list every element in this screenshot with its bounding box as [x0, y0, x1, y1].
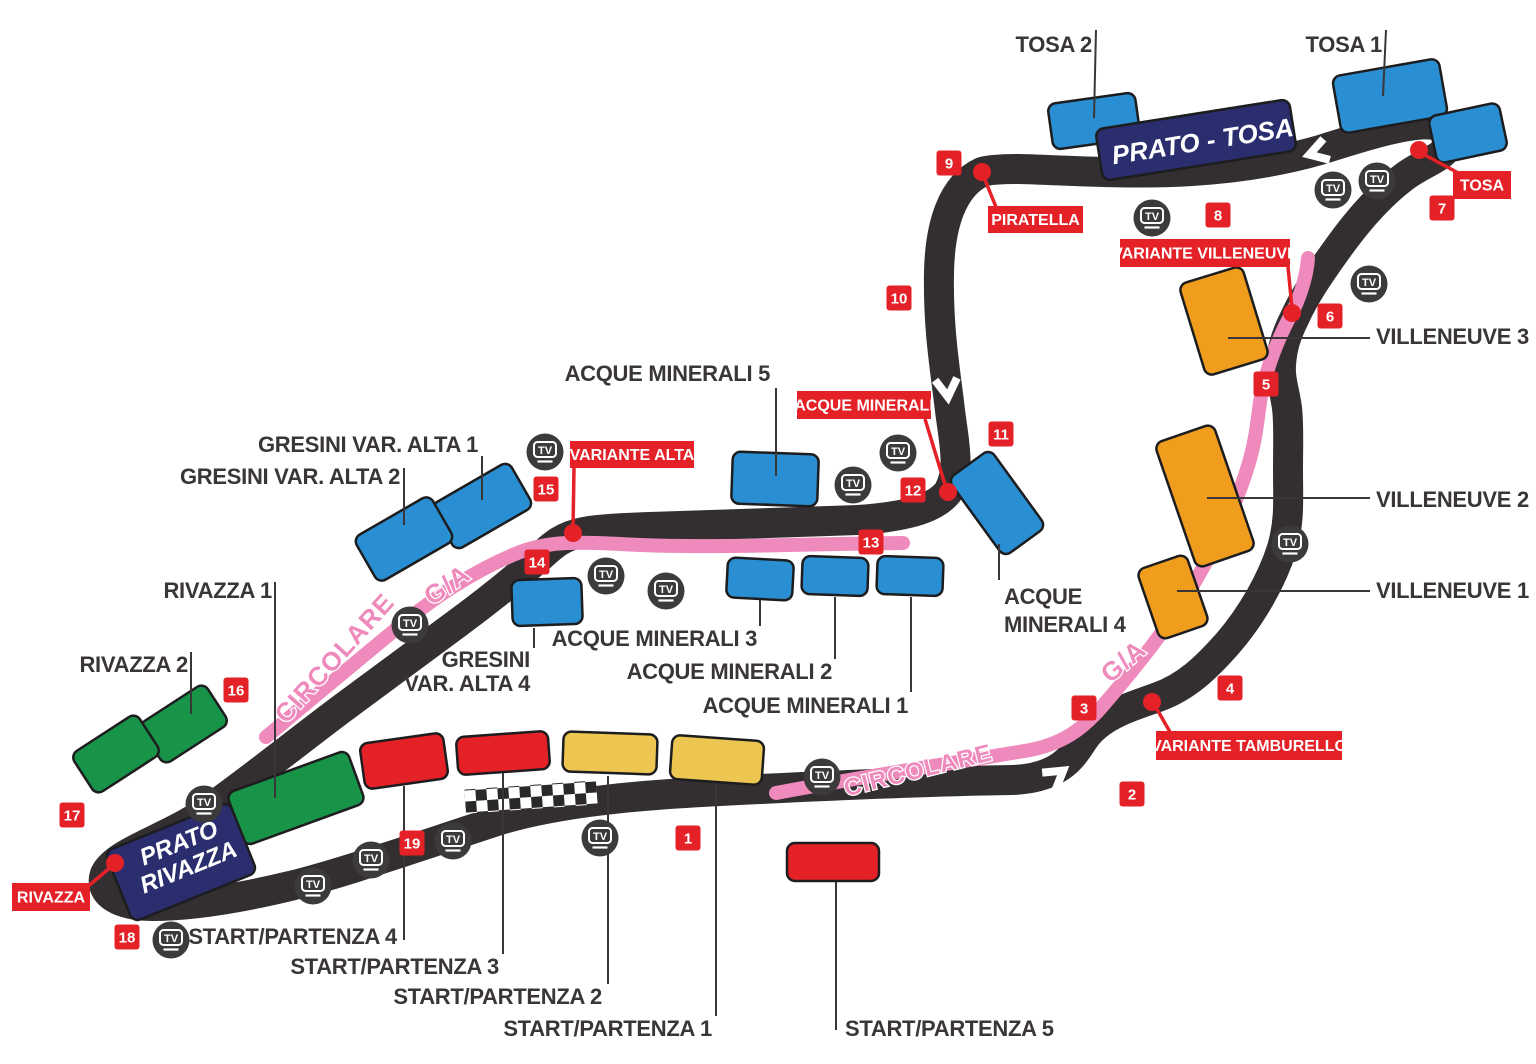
- sector-marker-label-16: 16: [228, 683, 245, 700]
- corner-flag-label-piratella: PIRATELLA: [991, 212, 1080, 229]
- sector-marker-label-18: 18: [119, 930, 136, 947]
- tv-camera-icon: TV: [295, 868, 332, 905]
- grandstand-label-acque-minerali-1: ACQUE MINERALI 1: [703, 693, 909, 718]
- sector-marker-label-10: 10: [891, 291, 908, 308]
- corner-connector-variante-alta: [573, 468, 574, 530]
- tv-camera-icon: TV: [527, 434, 564, 471]
- tv-camera-icon: TV: [153, 922, 190, 959]
- grandstand-label-villeneuve-3: VILLENEUVE 3: [1376, 324, 1529, 349]
- svg-text:TV: TV: [1283, 537, 1298, 549]
- tv-camera-icon: TV: [186, 786, 223, 823]
- grandstand-villeneuve-3[interactable]: [1178, 265, 1269, 376]
- svg-text:TV: TV: [306, 879, 321, 891]
- tv-camera-icon: TV: [1351, 266, 1388, 303]
- svg-text:TV: TV: [403, 618, 418, 630]
- sector-marker-label-19: 19: [404, 836, 421, 853]
- sector-marker-label-4: 4: [1226, 681, 1235, 698]
- grandstand-start-partenza-4[interactable]: [359, 732, 449, 789]
- tv-camera-icon: TV: [582, 820, 619, 857]
- grandstand-start-partenza-2[interactable]: [562, 731, 657, 774]
- sector-marker-label-2: 2: [1128, 787, 1136, 804]
- grandstand-label-acque-minerali-3: ACQUE MINERALI 3: [552, 626, 758, 651]
- tv-camera-icon: TV: [435, 823, 472, 860]
- tv-camera-icon: TV: [1315, 172, 1352, 209]
- corner-flag-label-variante-villeneuve: VARIANTE VILLENEUVE: [1112, 246, 1298, 263]
- corner-dot-variante-tamburello: [1143, 693, 1161, 711]
- grandstand-start-partenza-1[interactable]: [670, 735, 765, 785]
- grandstand-label-villeneuve-2: VILLENEUVE 2: [1376, 487, 1529, 512]
- corner-flag-label-variante-tamburello: VARIANTE TAMBURELLO: [1151, 738, 1347, 755]
- svg-text:TV: TV: [891, 446, 906, 458]
- grandstand-label-gresini-var-alta-4: GRESINI: [442, 647, 530, 672]
- grandstand-label-rivazza-2: RIVAZZA 2: [79, 652, 188, 677]
- tv-camera-icon: TV: [1272, 526, 1309, 563]
- sector-marker-label-1: 1: [684, 831, 692, 848]
- grandstand-gresini-var-alta-4[interactable]: [511, 578, 583, 626]
- grandstand-start-partenza-3[interactable]: [456, 731, 550, 775]
- svg-text:TV: TV: [197, 797, 212, 809]
- tv-camera-icon: TV: [1359, 163, 1396, 200]
- grandstand-label-acque-minerali-4: ACQUE: [1004, 584, 1082, 609]
- grandstand-start-partenza-5[interactable]: [787, 843, 879, 881]
- grandstand-label-gresini-var-alta-1: GRESINI VAR. ALTA 1: [258, 432, 478, 457]
- tv-camera-icon: TV: [588, 558, 625, 595]
- circuit-map: PRATO - TOSAPRATORIVAZZA CIRCOLAREG/ACIR…: [0, 0, 1536, 1064]
- grandstand-label-rivazza-1: RIVAZZA 1: [163, 578, 272, 603]
- corner-flag-label-rivazza: RIVAZZA: [17, 890, 86, 907]
- sector-marker-label-13: 13: [863, 535, 880, 552]
- tv-camera-icon: TV: [648, 573, 685, 610]
- tv-camera-icon: TV: [392, 607, 429, 644]
- grandstand-label-villeneuve-1: VILLENEUVE 1: [1376, 578, 1529, 603]
- sector-marker-label-9: 9: [945, 156, 953, 173]
- sector-marker-label-3: 3: [1080, 701, 1088, 718]
- svg-text:TV: TV: [364, 853, 379, 865]
- corner-dot-rivazza: [106, 854, 124, 872]
- sector-marker-label-17: 17: [64, 808, 81, 825]
- tv-camera-icon: TV: [804, 759, 841, 796]
- tv-camera-icon: TV: [835, 467, 872, 504]
- corner-dot-piratella: [973, 163, 991, 181]
- grandstand-label-acque-minerali-2: ACQUE MINERALI 2: [627, 659, 833, 684]
- tv-camera-icon: TV: [1134, 200, 1171, 237]
- corner-dot-variante-alta: [564, 524, 582, 542]
- corner-dot-variante-villeneuve: [1283, 304, 1301, 322]
- grandstand-label-tosa-1: TOSA 1: [1306, 32, 1383, 57]
- svg-text:TV: TV: [846, 478, 861, 490]
- svg-text:TV: TV: [1326, 183, 1341, 195]
- sector-marker-label-12: 12: [905, 483, 922, 500]
- grandstand-label-start-partenza-5: START/PARTENZA 5: [845, 1016, 1054, 1041]
- direction-arrow: [337, 823, 362, 850]
- sector-marker-label-15: 15: [538, 482, 555, 499]
- svg-text:TV: TV: [815, 770, 830, 782]
- grandstand-label-gresini-var-alta-4: VAR. ALTA 4: [404, 671, 531, 696]
- svg-text:TV: TV: [1145, 211, 1160, 223]
- sector-marker-label-6: 6: [1326, 309, 1334, 326]
- corner-flag-label-acque-minerali: ACQUE MINERALI: [794, 398, 934, 415]
- svg-text:TV: TV: [164, 933, 179, 945]
- grandstand-label-start-partenza-4: START/PARTENZA 4: [188, 924, 398, 949]
- svg-text:TV: TV: [1370, 174, 1385, 186]
- sector-marker-label-5: 5: [1262, 377, 1270, 394]
- sector-marker-label-14: 14: [529, 555, 546, 572]
- circuit-map-svg: PRATO - TOSAPRATORIVAZZA CIRCOLAREG/ACIR…: [0, 0, 1536, 1064]
- corner-dot-tosa: [1410, 141, 1428, 159]
- sector-marker-label-11: 11: [993, 427, 1009, 444]
- grandstand-acque-minerali-3[interactable]: [726, 557, 794, 600]
- svg-text:TV: TV: [659, 584, 674, 596]
- grandstand-label-start-partenza-3: START/PARTENZA 3: [290, 954, 499, 979]
- svg-text:TV: TV: [446, 834, 461, 846]
- corner-flag-label-tosa: TOSA: [1460, 178, 1505, 195]
- corner-dot-acque-minerali: [939, 483, 957, 501]
- walkway-label-ga: G/A: [1095, 634, 1152, 689]
- grandstand-label-tosa-2: TOSA 2: [1016, 32, 1093, 57]
- tv-camera-icon: TV: [353, 842, 390, 879]
- grandstand-acque-minerali-2[interactable]: [801, 556, 868, 596]
- grandstand-label-start-partenza-2: START/PARTENZA 2: [393, 984, 602, 1009]
- svg-text:TV: TV: [599, 569, 614, 581]
- sector-marker-label-7: 7: [1438, 201, 1446, 218]
- corner-flag-label-variante-alta: VARIANTE ALTA: [570, 447, 695, 464]
- grandstand-label-acque-minerali-5: ACQUE MINERALI 5: [565, 361, 771, 386]
- sector-marker-label-8: 8: [1214, 208, 1222, 225]
- grandstand-label-acque-minerali-4: MINERALI 4: [1004, 612, 1127, 637]
- svg-text:TV: TV: [1362, 277, 1377, 289]
- grandstand-acque-minerali-1[interactable]: [876, 556, 943, 596]
- tv-camera-icon: TV: [880, 435, 917, 472]
- grandstand-label-gresini-var-alta-2: GRESINI VAR. ALTA 2: [180, 464, 400, 489]
- svg-text:TV: TV: [593, 831, 608, 843]
- grandstand-label-start-partenza-1: START/PARTENZA 1: [503, 1016, 712, 1041]
- svg-text:TV: TV: [538, 445, 553, 457]
